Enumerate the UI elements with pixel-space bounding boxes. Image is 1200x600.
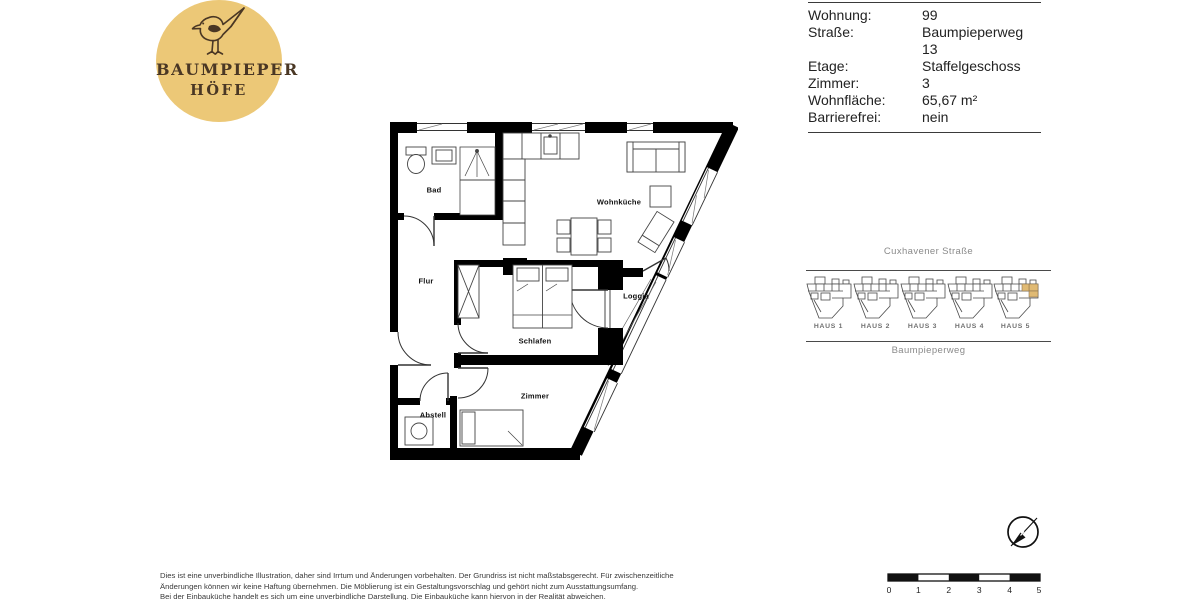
street-label-bottom: Baumpieperweg (806, 345, 1051, 356)
info-label: Wohnung: (808, 7, 922, 24)
floor-plan: Bad Flur Wohnküche Schlafen Loggia Zimme… (388, 118, 738, 463)
expose-page: Baumpieper Höfe Wohnung: 99 Straße: Baum… (0, 0, 1200, 600)
disclaimer-line-2: Änderungen können wir keine Haftung über… (160, 582, 820, 593)
room-label-schlafen: Schlafen (519, 337, 552, 346)
scale-tick: 4 (1007, 585, 1012, 595)
disclaimer-line-3: Bei der Einbauküche handelt es sich um e… (160, 592, 820, 600)
info-value: 65,67 m² (922, 92, 1041, 109)
info-row-wohnung: Wohnung: 99 (808, 7, 1041, 24)
room-label-bad: Bad (427, 186, 442, 195)
scale-tick: 0 (887, 585, 892, 595)
scale-tick: 2 (946, 585, 951, 595)
street-label-top: Cuxhavener Straße (806, 246, 1051, 257)
scale-tick: 5 (1037, 585, 1041, 595)
info-label: Straße: (808, 24, 922, 58)
info-label: Etage: (808, 58, 922, 75)
info-value: Staffelgeschoss (922, 58, 1041, 75)
info-label: Zimmer: (808, 75, 922, 92)
street-line-bottom (806, 341, 1051, 342)
scale-tick: 1 (916, 585, 921, 595)
house-4 (948, 277, 992, 318)
info-label: Barrierefrei: (808, 109, 922, 126)
house-label-5: HAUS 5 (993, 323, 1038, 330)
house-label-1: HAUS 1 (806, 323, 851, 330)
room-label-abstell: Abstell (420, 411, 446, 420)
info-row-etage: Etage: Staffelgeschoss (808, 58, 1041, 75)
disclaimer-text: Dies ist eine unverbindliche Illustratio… (160, 571, 820, 600)
info-value: nein (922, 109, 1041, 126)
scale-tick: 3 (977, 585, 982, 595)
logo-text-line1: Baumpieper (156, 60, 282, 79)
room-label-zimmer: Zimmer (521, 392, 549, 401)
site-plan: Cuxhavener Straße (806, 244, 1051, 360)
brand-logo: Baumpieper Höfe (156, 0, 282, 122)
scale-bar: 0 1 2 3 4 5 (887, 570, 1041, 596)
house-label-4: HAUS 4 (947, 323, 992, 330)
info-value: Baumpieperweg 13 (922, 24, 1041, 58)
room-label-flur: Flur (419, 277, 434, 286)
bird-icon (186, 4, 252, 60)
house-2 (854, 277, 898, 318)
info-label: Wohnfläche: (808, 92, 922, 109)
house-1 (807, 277, 851, 318)
houses-row (806, 274, 1051, 322)
logo-text-line2: Höfe (156, 82, 282, 99)
apartment-info-table: Wohnung: 99 Straße: Baumpieperweg 13 Eta… (808, 2, 1041, 133)
street-line-top (806, 270, 1051, 271)
info-value: 3 (922, 75, 1041, 92)
north-arrow-icon (1004, 513, 1042, 553)
info-row-barrierefrei: Barrierefrei: nein (808, 109, 1041, 126)
disclaimer-line-1: Dies ist eine unverbindliche Illustratio… (160, 571, 820, 582)
info-row-strasse: Straße: Baumpieperweg 13 (808, 24, 1041, 58)
room-label-loggia: Loggia (623, 292, 649, 301)
house-3 (901, 277, 945, 318)
house-label-3: HAUS 3 (900, 323, 945, 330)
house-label-2: HAUS 2 (853, 323, 898, 330)
info-value: 99 (922, 7, 1041, 24)
info-row-wohnflaeche: Wohnfläche: 65,67 m² (808, 92, 1041, 109)
house-5 (994, 277, 1038, 318)
room-label-wohnkueche: Wohnküche (597, 198, 641, 207)
info-row-zimmer: Zimmer: 3 (808, 75, 1041, 92)
